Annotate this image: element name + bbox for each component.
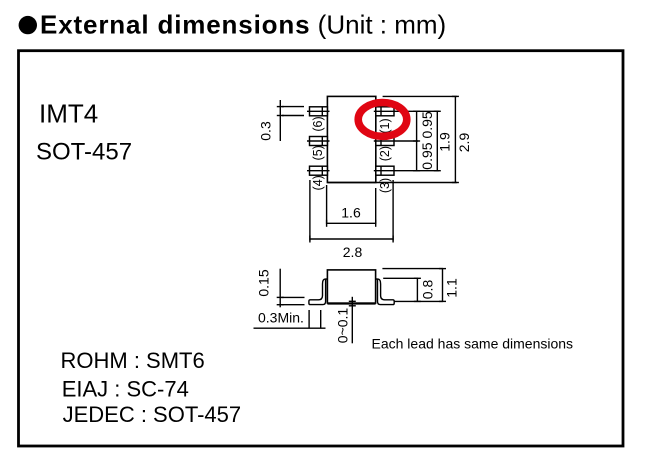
svg-text:0.95 0.95: 0.95 0.95: [419, 111, 435, 170]
svg-text:(1): (1): [378, 118, 392, 133]
svg-text:2.9: 2.9: [456, 133, 472, 153]
svg-text:0.15: 0.15: [256, 269, 272, 296]
svg-text:(3): (3): [378, 178, 392, 193]
svg-text:Each lead has same dimensions: Each lead has same dimensions: [372, 336, 574, 352]
svg-text:0.3Min.: 0.3Min.: [258, 310, 304, 326]
svg-text:(2): (2): [378, 146, 392, 161]
svg-text:SOT-457: SOT-457: [36, 138, 132, 165]
svg-text:1.9: 1.9: [437, 132, 453, 152]
svg-text:1.6: 1.6: [341, 204, 361, 220]
svg-text:IMT4: IMT4: [39, 98, 98, 128]
svg-text:ROHM : SMT6: ROHM : SMT6: [61, 348, 205, 373]
svg-text:0.8: 0.8: [419, 280, 435, 300]
svg-text:(4): (4): [311, 175, 325, 190]
svg-text:2.8: 2.8: [343, 244, 363, 260]
svg-text:(5): (5): [311, 145, 325, 160]
svg-text:JEDEC : SOT-457: JEDEC : SOT-457: [63, 402, 242, 427]
svg-text:(6): (6): [311, 116, 325, 131]
svg-text:0.3: 0.3: [258, 121, 274, 141]
svg-text:External dimensions (Unit : mm: External dimensions (Unit : mm): [40, 10, 446, 40]
svg-text:EIAJ : SC-74: EIAJ : SC-74: [62, 377, 189, 402]
svg-text:1.1: 1.1: [443, 278, 459, 298]
svg-text:0~0.1: 0~0.1: [335, 308, 351, 344]
